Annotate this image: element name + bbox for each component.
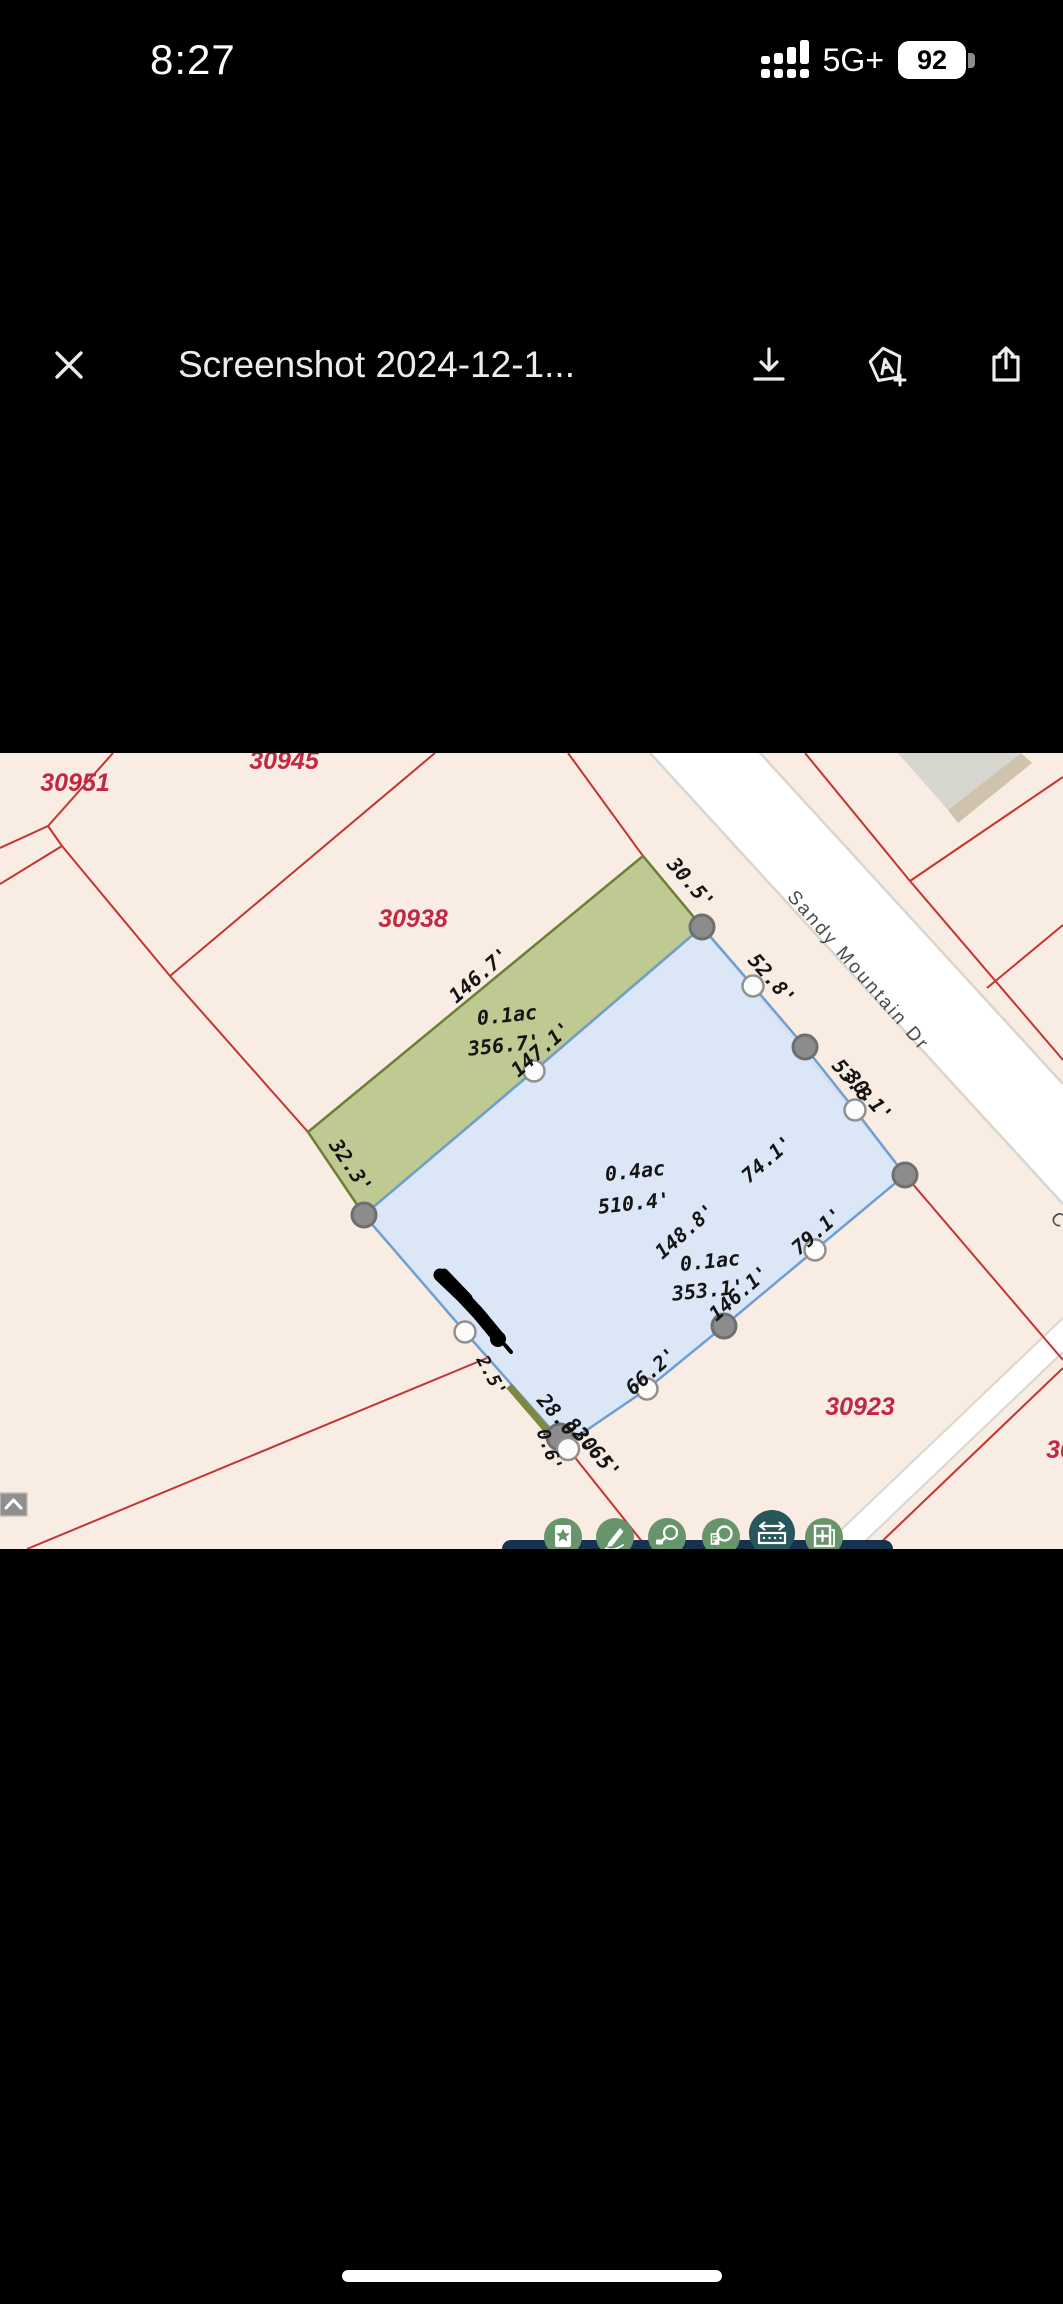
parcel-id-30951: 30951: [40, 769, 110, 797]
parcel-id-30938: 30938: [378, 905, 448, 933]
add-to-drive-button[interactable]: [862, 341, 910, 389]
home-indicator[interactable]: [342, 2270, 722, 2282]
battery-icon: 92: [898, 41, 975, 79]
status-icons: 5G+ 92: [761, 40, 975, 80]
bookmark-star-icon: [555, 1525, 571, 1547]
battery-percent: 92: [917, 45, 947, 76]
close-button[interactable]: [45, 341, 93, 389]
status-bar: 8:27 5G+ 92: [0, 0, 1063, 130]
file-title: Screenshot 2024-12-1...: [178, 300, 575, 430]
parcel-id-partial: 30: [1046, 1436, 1063, 1464]
expand-chevron-button: [0, 1493, 27, 1516]
close-icon: [45, 341, 93, 389]
download-button[interactable]: [745, 341, 793, 389]
parcel-map: 30951 30945 30938 30923 30 Sandy Mountai…: [0, 753, 1063, 1549]
photo-viewer-toolbar: Screenshot 2024-12-1...: [0, 150, 1063, 280]
share-icon: [982, 341, 1030, 389]
signal-icon: [761, 40, 809, 80]
parcel-id-30923: 30923: [825, 1393, 895, 1421]
add-to-drive-icon: [862, 341, 910, 389]
parcel-id-30945: 30945: [249, 753, 320, 775]
network-type-label: 5G+: [823, 42, 884, 79]
clock: 8:27: [150, 36, 236, 84]
map-image[interactable]: 30951 30945 30938 30923 30 Sandy Mountai…: [0, 753, 1063, 1549]
share-button[interactable]: [982, 341, 1030, 389]
battery-nub: [968, 53, 975, 68]
download-icon: [745, 341, 793, 389]
